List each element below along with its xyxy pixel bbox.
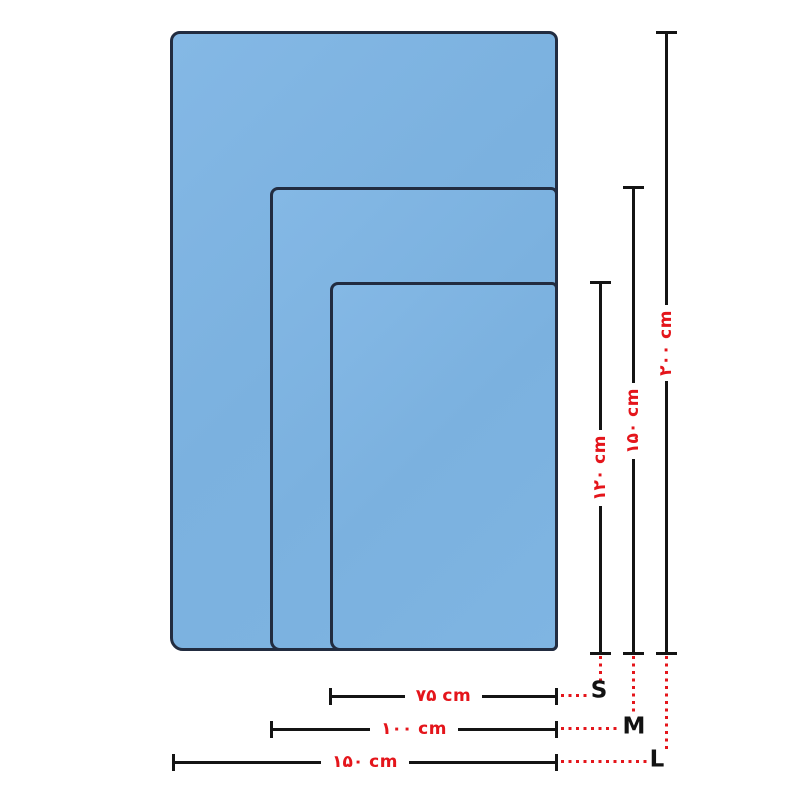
width-dimension-s: ۷۵ cm xyxy=(329,687,558,705)
dimension-line-segment xyxy=(175,761,321,764)
height-label-box-l: ۲۰۰ cm xyxy=(654,305,678,381)
width-dimension-m: ۱۰۰ cm xyxy=(270,720,558,738)
connector-dotted-horizontal-l xyxy=(561,760,647,763)
dimension-line-segment xyxy=(273,728,370,731)
dimension-line-segment xyxy=(599,284,602,430)
connector-dotted-horizontal-s xyxy=(561,694,589,697)
towel-size-s xyxy=(330,282,558,651)
dimension-endcap xyxy=(555,688,558,705)
connector-dotted-vertical-m xyxy=(632,656,635,714)
height-label-s: ۱۲۰ cm xyxy=(590,435,610,501)
height-dimension-l: ۲۰۰ cm xyxy=(654,31,678,655)
dimension-line-segment xyxy=(632,189,635,383)
size-letter-l: L xyxy=(650,749,665,772)
width-label-l: ۱۵۰ cm xyxy=(332,752,398,772)
size-letter-m: M xyxy=(623,716,646,739)
connector-dotted-vertical-l xyxy=(665,656,668,750)
dimension-endcap xyxy=(623,652,644,655)
height-label-box-m: ۱۵۰ cm xyxy=(621,383,645,459)
height-label-l: ۲۰۰ cm xyxy=(656,310,676,376)
width-dimension-l: ۱۵۰ cm xyxy=(172,753,558,771)
dimension-line-segment xyxy=(332,695,405,698)
dimension-line-segment xyxy=(665,381,668,652)
dimension-endcap xyxy=(555,721,558,738)
dimension-line-segment xyxy=(632,459,635,653)
dimension-line-segment xyxy=(409,761,555,764)
dimension-line-segment xyxy=(665,34,668,305)
connector-dotted-horizontal-m xyxy=(561,727,621,730)
dimension-endcap xyxy=(555,754,558,771)
height-label-box-s: ۱۲۰ cm xyxy=(588,430,612,506)
height-dimension-m: ۱۵۰ cm xyxy=(621,186,645,655)
dimension-endcap xyxy=(656,652,677,655)
width-label-s: ۷۵ cm xyxy=(416,686,471,706)
dimension-line-segment xyxy=(599,506,602,652)
dimension-line-segment xyxy=(458,728,555,731)
towel-size-diagram: ۱۲۰ cm ۱۵۰ cm ۲۰۰ cm ۷۵ cm ۱۰۰ cm xyxy=(0,0,800,800)
height-label-m: ۱۵۰ cm xyxy=(623,388,643,454)
height-dimension-s: ۱۲۰ cm xyxy=(588,281,612,655)
width-label-m: ۱۰۰ cm xyxy=(381,719,447,739)
dimension-endcap xyxy=(590,652,611,655)
size-letter-s: S xyxy=(591,680,608,703)
dimension-line-segment xyxy=(482,695,555,698)
